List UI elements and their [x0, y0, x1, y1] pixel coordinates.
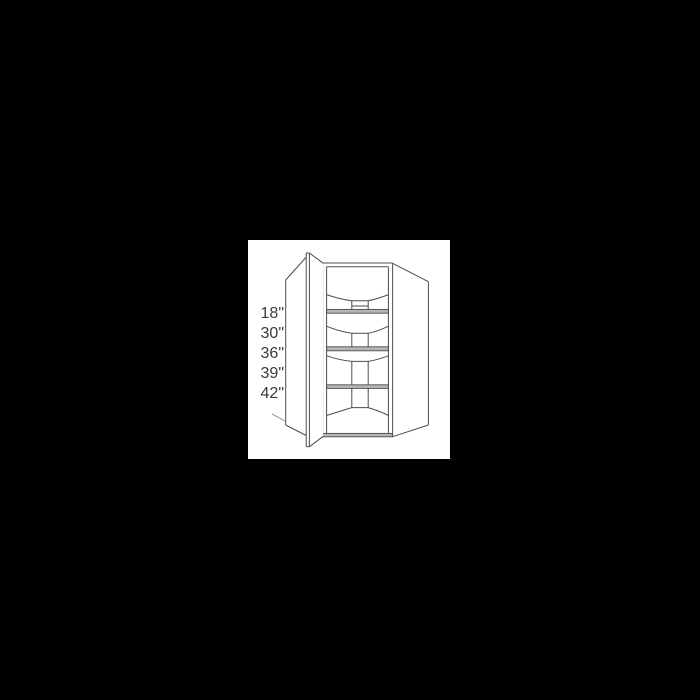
cabinet-right-side-panel — [393, 263, 429, 436]
cabinet-left-side-panel — [272, 258, 306, 436]
cabinet-drawing — [248, 240, 450, 459]
shelf-front-edge — [327, 385, 389, 389]
shelf-front-edge — [327, 309, 389, 313]
cabinet-open-door — [306, 253, 323, 447]
page-background: 18" 30" 36" 39" 42" — [0, 0, 700, 700]
drawing-canvas: 18" 30" 36" 39" 42" — [248, 240, 450, 459]
cabinet-interior — [327, 295, 389, 416]
bottom-rail — [323, 433, 392, 436]
shelf-front-edge — [327, 347, 389, 351]
